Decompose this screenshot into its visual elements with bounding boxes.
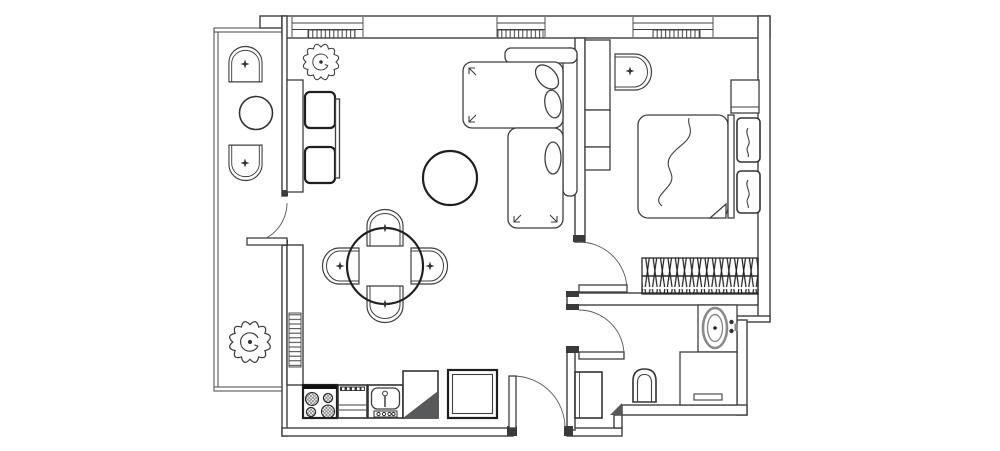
fridge-body bbox=[448, 370, 497, 418]
mattress bbox=[638, 115, 728, 218]
tap-icon bbox=[729, 329, 733, 333]
bedroom-window bbox=[633, 17, 713, 38]
cooktop-back-bar bbox=[303, 385, 337, 389]
wall-bottom-bathroom bbox=[622, 405, 747, 415]
shelving-column bbox=[585, 40, 610, 170]
wall-desk bbox=[287, 80, 303, 192]
toilet bbox=[633, 369, 656, 402]
desk-chair-2 bbox=[305, 147, 335, 183]
potted-plant-icon bbox=[303, 44, 338, 79]
corner-cabinet bbox=[403, 371, 438, 418]
throw-cushion bbox=[545, 142, 561, 174]
balcony-side-table bbox=[240, 97, 273, 130]
burner-icon bbox=[323, 393, 332, 402]
wall-left-lower bbox=[282, 240, 287, 436]
cooktop bbox=[303, 385, 337, 418]
potted-plant-icon bbox=[230, 322, 271, 363]
jamb bbox=[566, 291, 579, 297]
radiator-icon bbox=[498, 30, 543, 38]
hallway bbox=[575, 372, 602, 418]
desk-panel bbox=[336, 99, 340, 178]
burner-icon bbox=[306, 407, 315, 416]
wall-radiator-ladder bbox=[289, 313, 301, 367]
burner-icon bbox=[322, 405, 335, 418]
washbasin bbox=[698, 305, 738, 352]
radiator-icon bbox=[308, 30, 355, 38]
hanging-wardrobe bbox=[642, 258, 758, 294]
jamb bbox=[566, 346, 579, 353]
coffee-table-round bbox=[423, 151, 477, 205]
wall-left-upper bbox=[282, 16, 287, 196]
shelf-section bbox=[585, 147, 610, 170]
bedroom-armchair bbox=[615, 54, 652, 90]
drain-icon bbox=[713, 326, 717, 330]
balcony-wall-left bbox=[214, 28, 218, 391]
sofa-backrest-right bbox=[563, 48, 577, 196]
wall-right-lower bbox=[737, 320, 747, 415]
floor-plan-page: Black-and-white architectural floor plan… bbox=[0, 0, 1000, 451]
kitchen-sink bbox=[368, 385, 403, 418]
sofa-backrest-top bbox=[505, 48, 577, 63]
nightstand bbox=[731, 80, 759, 113]
balcony-wall-bottom bbox=[214, 387, 282, 391]
living-window-1 bbox=[292, 17, 363, 38]
dining-table-round bbox=[347, 228, 423, 304]
tap-body bbox=[735, 324, 739, 332]
shelf-section bbox=[585, 110, 610, 147]
door-leaf bbox=[509, 376, 516, 428]
jamb bbox=[573, 235, 585, 242]
desk-chair-1 bbox=[305, 92, 335, 128]
shelf-section bbox=[585, 40, 610, 110]
oven bbox=[338, 385, 367, 418]
wall-jog-bathroom bbox=[614, 415, 622, 428]
living-window-2 bbox=[497, 17, 545, 38]
burner-icon bbox=[306, 393, 319, 406]
door-leaf bbox=[579, 352, 624, 359]
headboard bbox=[728, 115, 734, 218]
radiator-icon bbox=[653, 30, 700, 38]
washing-machine bbox=[680, 352, 737, 405]
door-leaf bbox=[579, 285, 627, 292]
door-leaf bbox=[247, 238, 287, 245]
floor-plan-drawing bbox=[0, 0, 1000, 451]
windows bbox=[292, 17, 713, 38]
faucet-icon bbox=[383, 391, 388, 396]
refrigerator bbox=[448, 370, 497, 418]
tap-icon bbox=[729, 320, 733, 324]
wall-hall-bathroom bbox=[567, 352, 575, 430]
wall-right-upper bbox=[758, 16, 770, 320]
washer-body bbox=[680, 352, 737, 405]
wall-bedroom-bathroom bbox=[567, 293, 758, 305]
wall-bottom-kitchen bbox=[282, 428, 513, 436]
wall-step-top-left bbox=[260, 16, 282, 28]
nightstand-body bbox=[731, 80, 759, 113]
jamb bbox=[566, 304, 579, 310]
